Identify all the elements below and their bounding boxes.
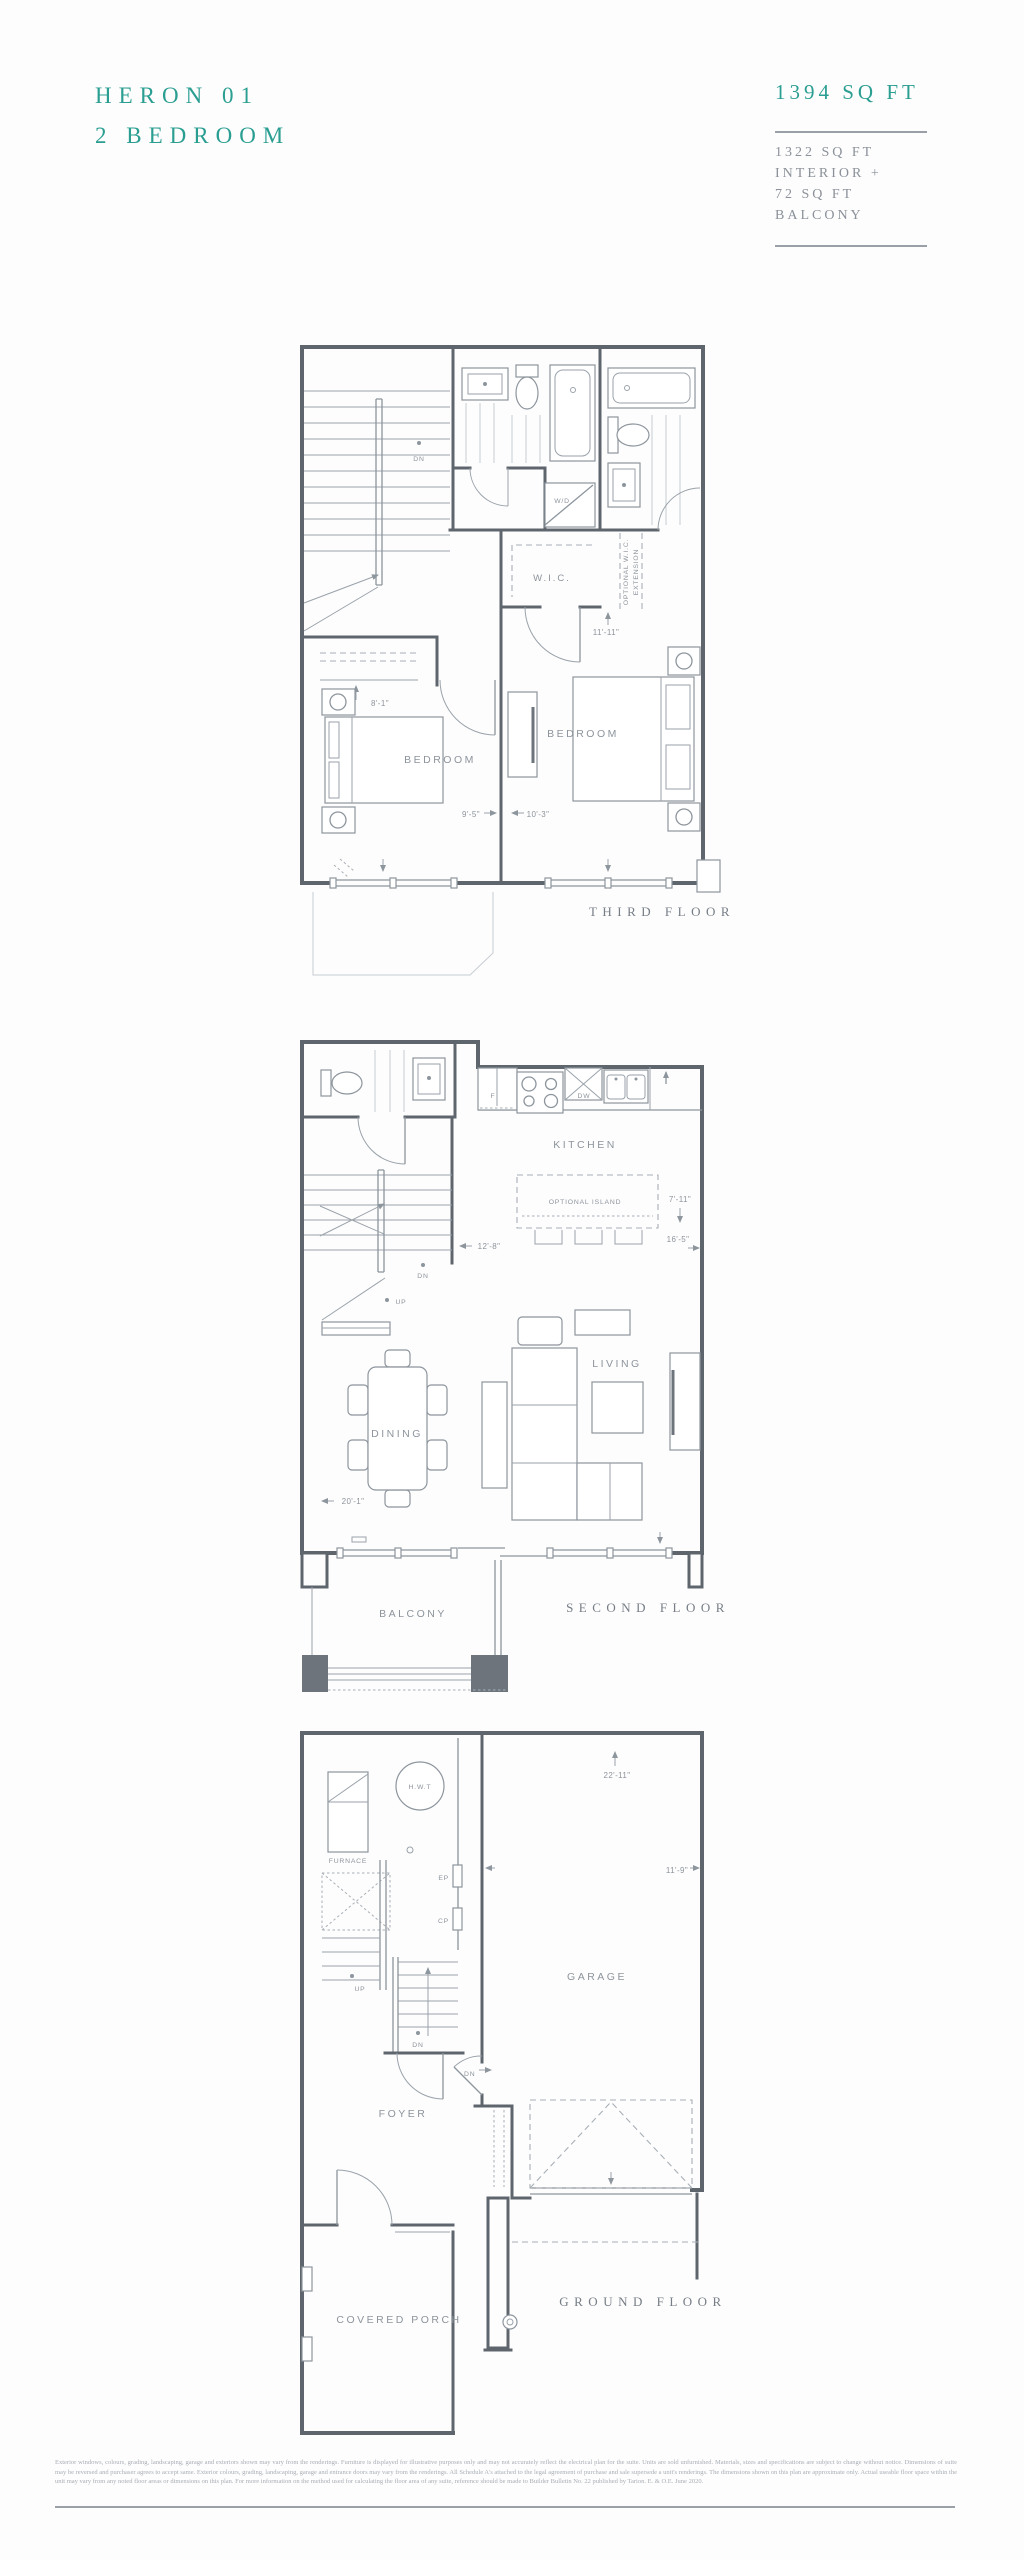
windows	[337, 1532, 672, 1560]
living-label: LIVING	[592, 1358, 641, 1370]
ep-label: EP	[438, 1875, 449, 1882]
area-line: 72 SQ FT	[775, 184, 882, 205]
optional-wic-label2: EXTENSION	[633, 549, 640, 595]
dining-area: DINING 20'-1"	[322, 1350, 447, 1507]
header-rule-bottom	[775, 245, 927, 247]
area-line: BALCONY	[775, 205, 882, 226]
furnace-label: FURNACE	[329, 1858, 367, 1865]
second-floor-plan: F DW KITCHEN OPTIONAL ISLAND 7'-11" 16'-…	[290, 1020, 730, 1700]
stair-dn-label: DN	[417, 1273, 428, 1280]
stairs: DN	[304, 391, 450, 631]
dim-main-width: 20'-1"	[342, 1497, 365, 1506]
page-title: HERON 012 BEDROOM	[95, 76, 290, 156]
bedroom-right-label: BEDROOM	[547, 728, 619, 740]
garage-dn-label: DN	[464, 2071, 475, 2078]
dim-bedroom-left: 9'-5"	[462, 810, 480, 819]
header-rule-top	[775, 131, 927, 133]
stair-up-label: UP	[395, 1299, 406, 1306]
mechanical-room: FURNACE H.W.T EP CP	[328, 1738, 462, 1950]
cp-label: CP	[438, 1918, 449, 1925]
garage-entry: DN	[454, 2056, 491, 2095]
ground-floor-label: GROUND FLOOR	[559, 2294, 726, 2309]
area-breakdown: 1322 SQ FT INTERIOR + 72 SQ FT BALCONY	[775, 142, 882, 226]
balcony-label: BALCONY	[379, 1608, 447, 1620]
area-line: 1322 SQ FT	[775, 142, 882, 163]
floorplan-sheet: HERON 012 BEDROOM 1394 SQ FT 1322 SQ FT …	[0, 0, 1024, 2560]
kitchen: F DW KITCHEN	[478, 1067, 702, 1151]
disclaimer-text: Exterior windows, colours, grading, land…	[55, 2458, 957, 2487]
roof-outline	[313, 892, 493, 975]
living-area: LIVING	[482, 1310, 700, 1520]
dim-island: 7'-11"	[669, 1195, 691, 1204]
third-floor-plan: DN	[290, 335, 730, 985]
bedroom-left-label: BEDROOM	[404, 754, 476, 766]
stair-up-label: UP	[354, 1986, 365, 1993]
interior-walls	[475, 1733, 530, 2350]
stair-dn-label: DN	[412, 2042, 423, 2049]
gas-meter	[503, 2315, 517, 2329]
optional-island-label: OPTIONAL ISLAND	[549, 1199, 622, 1206]
covered-porch-label: COVERED PORCH	[336, 2314, 461, 2326]
garage-label: GARAGE	[567, 1971, 627, 1983]
dim-wic: 11'-11"	[593, 628, 619, 637]
plan-name: HERON 01	[95, 83, 259, 108]
fridge-label: F	[491, 1093, 496, 1100]
dim-kitchen-width: 16'-5"	[667, 1235, 690, 1244]
stair-dn-label: DN	[413, 456, 424, 463]
foyer-label: FOYER	[379, 2108, 428, 2120]
dim-closet: 8'-1"	[371, 699, 389, 708]
optional-wic-extension: OPTIONAL W.I.C. EXTENSION 11'-11"	[593, 533, 642, 637]
chimney-box	[697, 860, 720, 892]
ground-floor-plan: FURNACE H.W.T EP CP UP DN	[290, 1710, 730, 2450]
kitchen-label: KITCHEN	[553, 1139, 617, 1151]
foyer: FOYER	[302, 2108, 453, 2433]
bathroom-ensuite	[608, 368, 700, 530]
balcony: BALCONY	[302, 1553, 702, 1692]
dining-label: DINING	[371, 1428, 423, 1440]
stairs: UP DN	[322, 1860, 463, 2099]
dishwasher-label: DW	[578, 1093, 591, 1100]
bedroom-right: BEDROOM 9'-5" 10'-3"	[462, 647, 700, 831]
optional-island: OPTIONAL ISLAND 7'-11" 16'-5"	[517, 1175, 699, 1248]
footer-rule	[55, 2506, 955, 2508]
plan-type: 2 BEDROOM	[95, 123, 290, 148]
dim-stair: 12'-8"	[478, 1242, 501, 1251]
third-floor-label: THIRD FLOOR	[589, 904, 735, 919]
dim-garage-depth: 11'-9"	[666, 1866, 688, 1875]
optional-wic-label: OPTIONAL W.I.C.	[623, 539, 630, 606]
powder-room	[302, 1042, 455, 1164]
laundry-closet: W/D	[545, 483, 595, 527]
second-floor-label: SECOND FLOOR	[566, 1600, 730, 1615]
wic-label: W.I.C.	[533, 573, 571, 584]
dim-garage-width: 22'-11"	[603, 1771, 630, 1780]
walk-in-closet: W.I.C.	[512, 545, 592, 662]
bedroom-left: 8'-1" BEDROOM	[320, 653, 495, 833]
dim-bedroom-right: 10'-3"	[527, 810, 550, 819]
stairs: DN UP 12'-8"	[304, 1117, 500, 1335]
total-area: 1394 SQ FT	[775, 80, 919, 105]
wd-label: W/D	[554, 498, 570, 505]
area-line: INTERIOR +	[775, 163, 882, 184]
garage: GARAGE 22'-11" 11'-9"	[486, 1752, 700, 2242]
hwt-label: H.W.T	[409, 1784, 432, 1791]
